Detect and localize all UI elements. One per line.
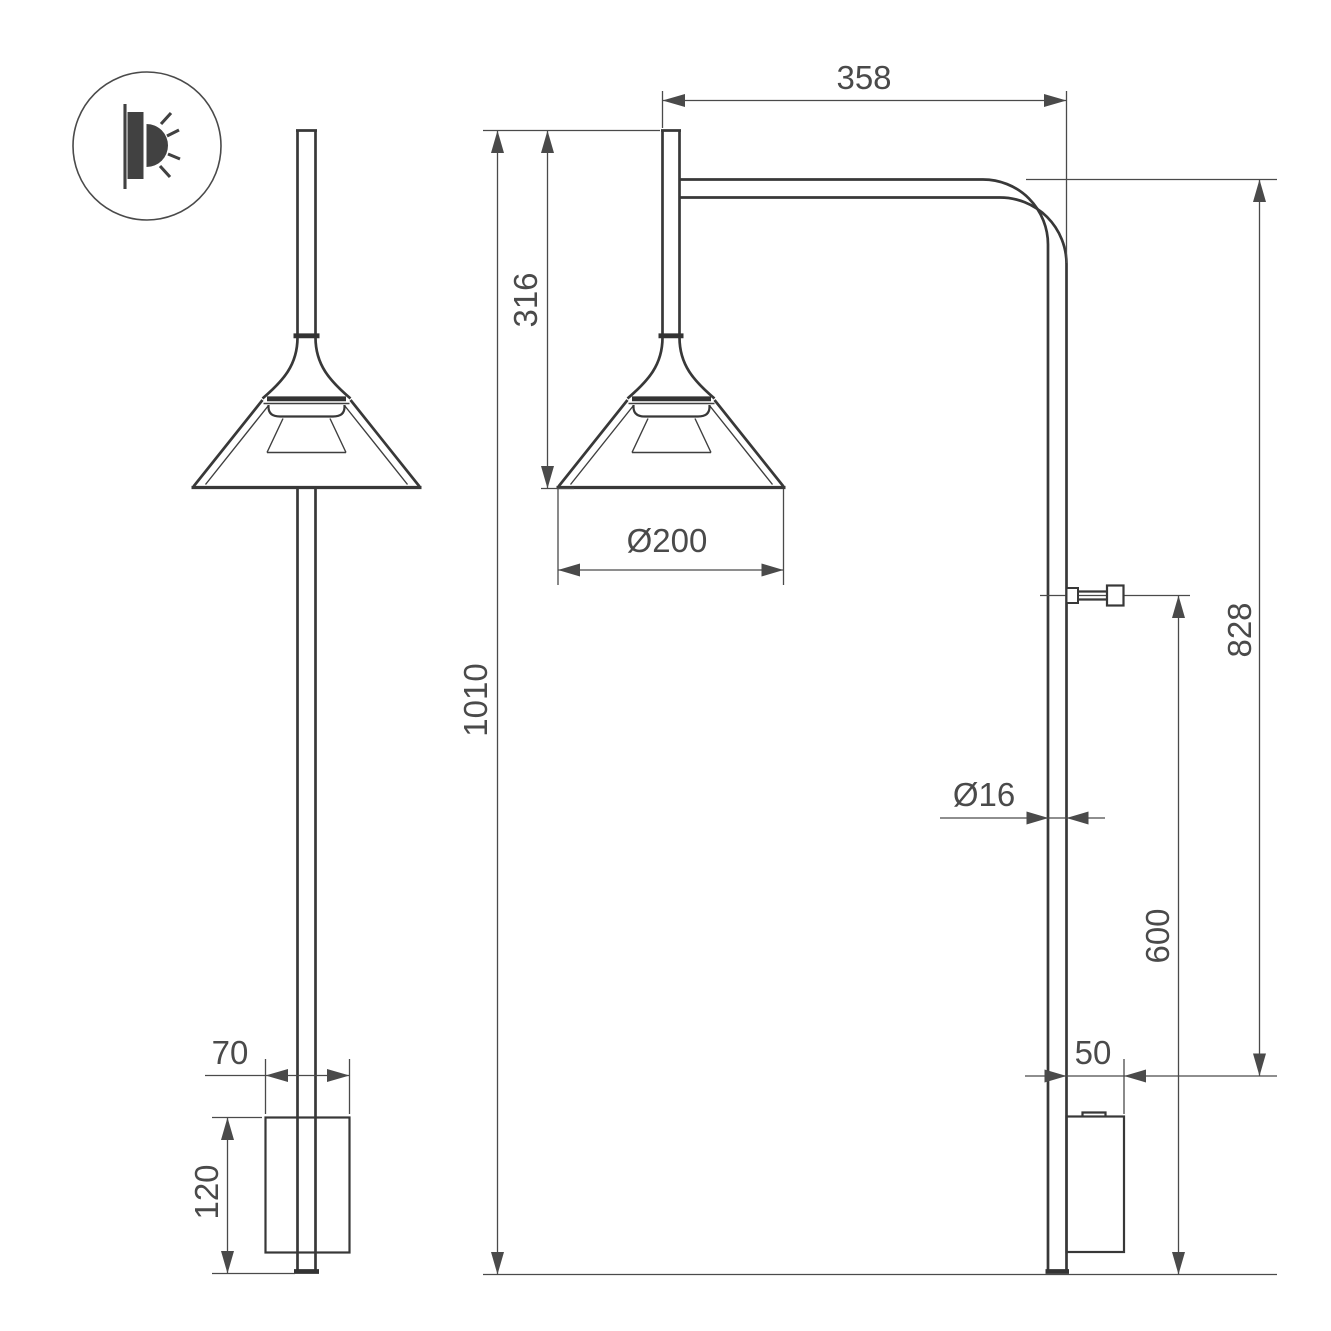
dim-label-mount-height: 120 bbox=[188, 1164, 225, 1219]
side-lens bbox=[634, 405, 710, 417]
dim-label-total-height: 1010 bbox=[457, 663, 494, 736]
side-light-beam bbox=[632, 419, 711, 453]
side-flare bbox=[628, 338, 715, 399]
front-view bbox=[192, 131, 422, 1272]
technical-drawing-page: 358 316 Ø200 1010 828 Ø16 600 70 120 50 bbox=[0, 0, 1331, 1331]
front-lens bbox=[269, 405, 345, 417]
dim-label-shade-diameter: Ø200 bbox=[627, 522, 708, 559]
side-arm-outer bbox=[680, 180, 1049, 1272]
dimension-arrows bbox=[221, 94, 1266, 1275]
dim-358-extensions bbox=[663, 91, 1067, 263]
side-shade-outer bbox=[559, 400, 784, 487]
icon-lamp-body bbox=[128, 112, 144, 179]
side-mount-box bbox=[1067, 1117, 1125, 1253]
front-flare bbox=[263, 338, 351, 399]
dim-label-upper-right: 828 bbox=[1221, 602, 1258, 657]
front-pole bbox=[298, 488, 316, 1272]
dimension-lines bbox=[205, 91, 1277, 1275]
dim-label-head: 316 bbox=[507, 272, 544, 327]
wall-light-icon bbox=[73, 72, 221, 220]
dim-label-lower-right: 600 bbox=[1139, 908, 1176, 963]
switch-base bbox=[1067, 588, 1079, 603]
switch-knob bbox=[1107, 586, 1124, 606]
dim-label-tube-diameter: Ø16 bbox=[953, 776, 1015, 813]
dim-label-mount-width: 70 bbox=[212, 1034, 249, 1071]
front-shade-outer bbox=[194, 400, 420, 487]
front-mount-box bbox=[266, 1118, 350, 1253]
side-arm-inner bbox=[680, 198, 1067, 1272]
side-stem bbox=[663, 131, 680, 335]
front-light-beam bbox=[267, 419, 346, 453]
front-stem bbox=[298, 131, 316, 335]
dim-70-extensions bbox=[266, 1059, 350, 1114]
drawing-canvas: 358 316 Ø200 1010 828 Ø16 600 70 120 50 bbox=[0, 0, 1331, 1331]
dim-label-mount-depth: 50 bbox=[1075, 1034, 1112, 1071]
dimension-labels: 358 316 Ø200 1010 828 Ø16 600 70 120 50 bbox=[188, 59, 1258, 1220]
icon-light-dome bbox=[147, 124, 169, 167]
side-view bbox=[557, 131, 1125, 1272]
dim-label-arm: 358 bbox=[836, 59, 891, 96]
